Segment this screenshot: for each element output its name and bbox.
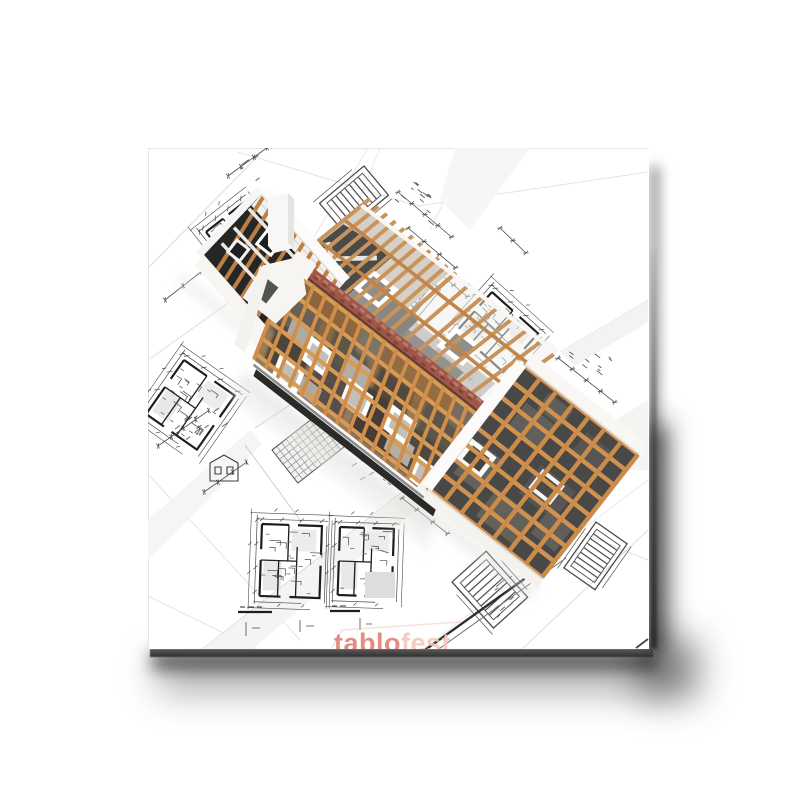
svg-text:tablofest: tablofest [334, 628, 451, 649]
